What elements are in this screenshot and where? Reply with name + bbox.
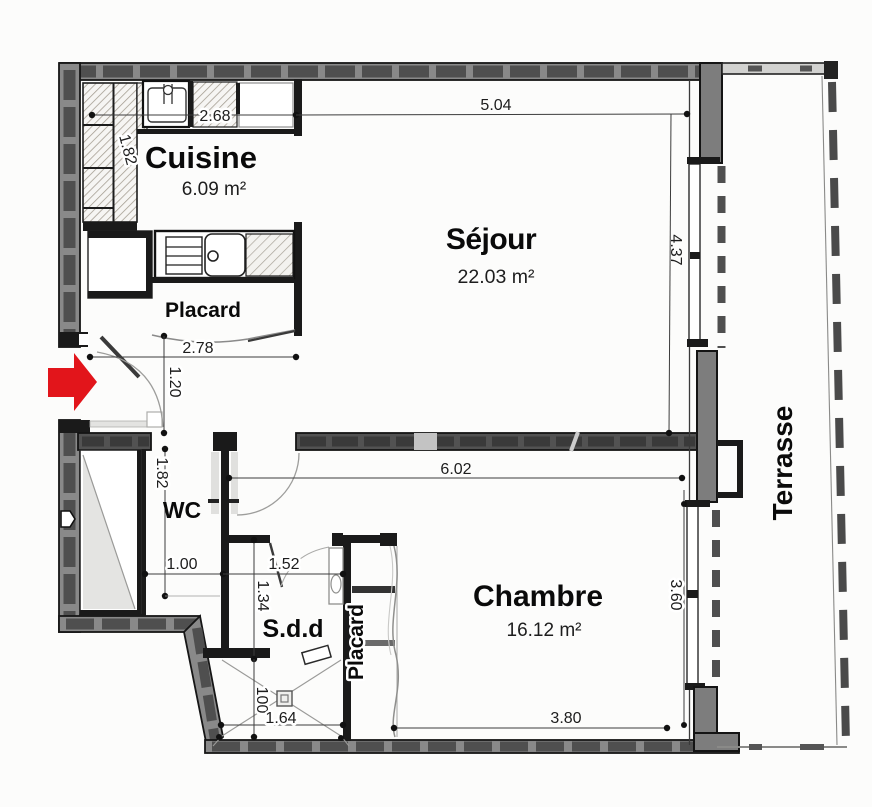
svg-text:3.60: 3.60 <box>667 579 684 610</box>
svg-text:Placard: Placard <box>345 604 368 680</box>
svg-text:WC: WC <box>163 497 201 523</box>
svg-text:2.78: 2.78 <box>182 340 213 357</box>
svg-text:S.d.d: S.d.d <box>262 615 323 643</box>
svg-text:Placard: Placard <box>165 299 241 322</box>
svg-text:1.82: 1.82 <box>153 457 170 488</box>
svg-text:1.34: 1.34 <box>254 580 271 611</box>
svg-text:1.52: 1.52 <box>268 556 299 573</box>
svg-text:Terrasse: Terrasse <box>767 406 798 521</box>
svg-text:Séjour: Séjour <box>446 223 537 256</box>
svg-text:5.04: 5.04 <box>480 97 511 114</box>
svg-text:6.02: 6.02 <box>440 461 471 478</box>
svg-text:16.12 m²: 16.12 m² <box>507 620 582 641</box>
svg-text:6.09 m²: 6.09 m² <box>182 179 246 200</box>
svg-text:Chambre: Chambre <box>473 580 603 613</box>
svg-text:3.80: 3.80 <box>550 710 581 727</box>
svg-text:4.37: 4.37 <box>667 234 684 265</box>
svg-text:22.03 m²: 22.03 m² <box>458 266 535 288</box>
svg-text:1.20: 1.20 <box>166 366 183 397</box>
svg-text:1.00: 1.00 <box>166 556 197 573</box>
svg-text:Cuisine: Cuisine <box>145 140 257 175</box>
svg-text:2.68: 2.68 <box>199 108 230 125</box>
svg-text:1.64: 1.64 <box>265 710 296 727</box>
